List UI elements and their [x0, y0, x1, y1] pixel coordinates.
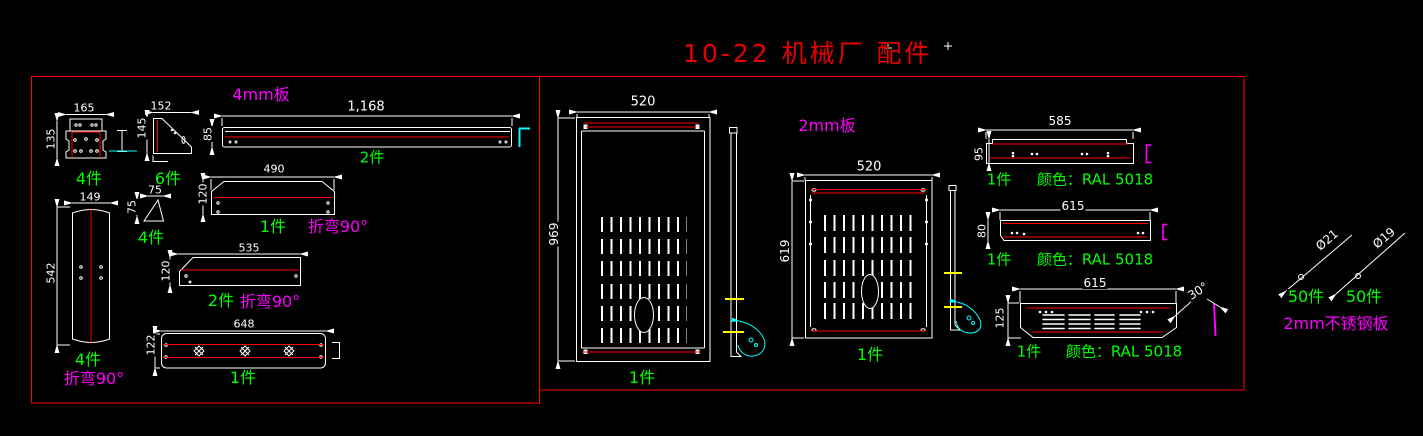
- dim-tray490-height: 120: [198, 183, 209, 206]
- note-tallpanel-bend: 折弯90°: [63, 371, 125, 387]
- qty-strip2: 1件: [986, 253, 1013, 268]
- oval-cutout: [634, 297, 654, 333]
- panel2-section-ticks: [944, 273, 962, 307]
- clamp-bracket-magenta: [1147, 145, 1152, 163]
- qty-bar648: 1件: [229, 370, 257, 386]
- dim-panel1-height: 969: [548, 222, 560, 247]
- dim-panel2-height: 619: [779, 239, 791, 264]
- qty-tray535: 2件: [207, 293, 235, 309]
- qty-tray490: 1件: [259, 219, 287, 235]
- dim-strip2-height: 80: [977, 223, 988, 239]
- part-gusset-75: [144, 200, 164, 221]
- dim-strip2-length: 615: [1061, 200, 1086, 212]
- qty-strip1: 1件: [986, 173, 1013, 188]
- panel1-side-profile: [730, 128, 742, 357]
- dim-panel1-width: 520: [630, 96, 657, 109]
- dim-bar648-height: 122: [146, 334, 157, 357]
- dim-panel2-width: 520: [856, 161, 883, 174]
- part-bar-648: [162, 334, 340, 369]
- material-left-box: 4mm板: [231, 87, 290, 103]
- flange-edge-magenta: [1214, 304, 1216, 337]
- vent-slot-row: [601, 239, 687, 254]
- qty-washer-21: 50件: [1287, 289, 1325, 305]
- dim-longbar-height: 85: [203, 126, 214, 142]
- part-bracket-bend-lines: [72, 132, 100, 157]
- vent-slot-row: [601, 261, 687, 276]
- part-bar648-bend-lines: [163, 345, 324, 358]
- color-strip3: 颜色：RAL 5018: [1065, 345, 1183, 360]
- note-tray535-bend: 折弯90°: [239, 294, 301, 310]
- qty-panel2: 1件: [856, 347, 884, 363]
- note-tray490-bend: 折弯90°: [307, 219, 369, 235]
- dim-tallpanel-width: 149: [79, 192, 102, 203]
- qty-tallpanel: 4件: [74, 352, 102, 368]
- color-strip1: 颜色：RAL 5018: [1036, 173, 1154, 188]
- dim-bracket-width: 165: [73, 103, 96, 114]
- dim-tray535-height: 120: [161, 260, 172, 283]
- qty-panel1: 1件: [628, 370, 656, 386]
- dim-strip1-length: 585: [1048, 115, 1073, 127]
- qty-gusset75: 4件: [137, 230, 165, 246]
- dim-gusset75-width: 75: [147, 185, 163, 196]
- material-right-box: 2mm板: [797, 118, 856, 134]
- qty-strip3: 1件: [1016, 345, 1043, 360]
- louver-vents: [1043, 315, 1140, 329]
- dim-gusset-width: 152: [150, 101, 173, 112]
- panel2-side-profile: [949, 186, 960, 331]
- dim-tray490-length: 490: [263, 164, 286, 175]
- dim-gusset75-height: 75: [127, 199, 138, 215]
- material-washers: 2mm不锈钢板: [1282, 316, 1389, 332]
- dim-tallpanel-height: 542: [46, 262, 57, 285]
- qty-longbar: 2件: [359, 151, 386, 166]
- oval-cutout: [861, 274, 879, 309]
- qty-washer-19: 50件: [1345, 289, 1383, 305]
- dim-strip3-length: 615: [1083, 277, 1108, 289]
- clamp-bracket-magenta: [1163, 225, 1168, 240]
- part-gusset-152: [153, 119, 192, 163]
- dim-tray535-length: 535: [238, 243, 261, 254]
- vent-slot-row: [601, 217, 687, 232]
- sheet-title: 10-22 机械厂 配件: [683, 34, 933, 70]
- dim-bar648-length: 648: [233, 319, 256, 330]
- vent-slot-row: [824, 215, 914, 231]
- part-tray-535: [180, 258, 301, 286]
- dim-bracket-height: 135: [46, 128, 57, 151]
- dim-longbar-length: 1,168: [346, 101, 385, 114]
- dim-strip1-height: 95: [974, 146, 985, 162]
- dim-strip3-height: 125: [995, 307, 1006, 330]
- panel1-section-ticks: [723, 299, 744, 332]
- color-strip2: 颜色：RAL 5018: [1036, 253, 1154, 268]
- qty-bracket: 4件: [75, 171, 103, 187]
- corner-bracket-cyan-icon: [519, 129, 530, 148]
- dim-gusset-height: 145: [137, 117, 148, 140]
- channel-profile-view: [117, 131, 127, 152]
- position-mark-icon: [194, 346, 294, 356]
- vent-slot-row: [824, 237, 914, 253]
- part-strip-585: [987, 140, 1134, 164]
- panel1-detail-sketch-cyan: [738, 321, 765, 356]
- cad-canvas: 10-22 机械厂 配件 1651354件1521456件4mm板1,16885…: [0, 0, 1423, 436]
